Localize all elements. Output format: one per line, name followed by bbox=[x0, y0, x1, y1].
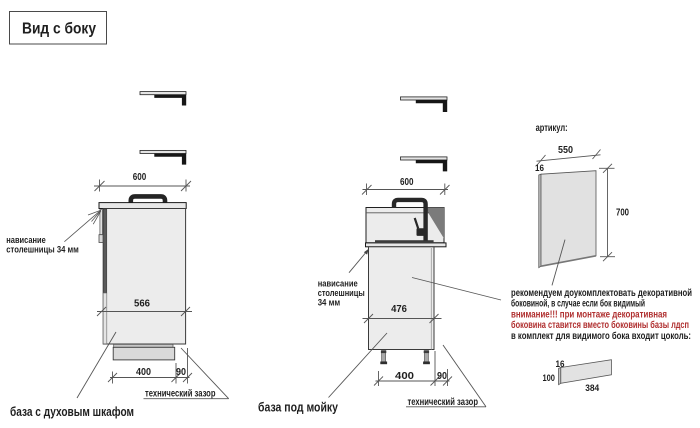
svg-text:90: 90 bbox=[176, 367, 186, 378]
svg-text:в комплект для видимого бока в: в комплект для видимого бока входит цоко… bbox=[511, 330, 691, 342]
svg-text:столешницы 34 мм: столешницы 34 мм bbox=[6, 245, 79, 256]
svg-text:550: 550 bbox=[558, 145, 573, 156]
svg-text:артикул:: артикул: bbox=[536, 123, 568, 134]
svg-text:566: 566 bbox=[134, 299, 150, 310]
svg-text:база под мойку: база под мойку bbox=[258, 400, 339, 415]
svg-text:рекомендуем доукомплектовать д: рекомендуем доукомплектовать декоративно… bbox=[511, 288, 692, 299]
svg-text:боковина ставится вместо боков: боковина ставится вместо боковины базы л… bbox=[511, 319, 689, 331]
svg-text:внимание!!! при монтаже декора: внимание!!! при монтаже декоративная bbox=[511, 309, 667, 320]
svg-text:технический зазор: технический зазор bbox=[145, 389, 216, 400]
svg-text:600: 600 bbox=[133, 172, 147, 183]
svg-text:476: 476 bbox=[391, 304, 407, 315]
svg-text:база с духовым шкафом: база с духовым шкафом bbox=[10, 404, 134, 419]
svg-text:технический зазор: технический зазор bbox=[408, 397, 479, 408]
svg-text:600: 600 bbox=[400, 177, 414, 188]
svg-text:384: 384 bbox=[585, 383, 600, 394]
svg-text:Вид с боку: Вид с боку bbox=[22, 21, 96, 38]
svg-text:90: 90 bbox=[437, 371, 447, 382]
svg-text:100: 100 bbox=[542, 373, 555, 384]
svg-text:400: 400 bbox=[395, 371, 414, 382]
svg-text:16: 16 bbox=[535, 163, 544, 174]
svg-text:400: 400 bbox=[136, 367, 151, 378]
svg-text:34 мм: 34 мм bbox=[318, 297, 341, 308]
svg-text:700: 700 bbox=[616, 208, 629, 219]
svg-text:боковиной, в случае если бок в: боковиной, в случае если бок видимый bbox=[511, 298, 645, 310]
